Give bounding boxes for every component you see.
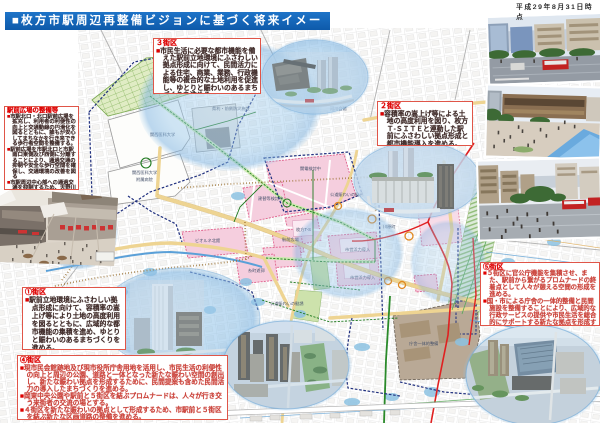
svg-text:公道賑わいの勧誘: 公道賑わいの勧誘: [270, 300, 304, 307]
svg-text:糸町遊郭: 糸町遊郭: [248, 267, 265, 274]
svg-text:関西医科大学: 関西医科大学: [132, 169, 157, 176]
svg-text:附属病院: 附属病院: [136, 176, 154, 183]
svg-text:庁舎一体的整備: 庁舎一体的整備: [409, 340, 438, 347]
svg-text:ビオルネ北館: ビオルネ北館: [195, 237, 220, 244]
svg-text:関電検討中: 関電検討中: [300, 165, 321, 172]
svg-text:建替等検討中: 建替等検討中: [258, 195, 283, 202]
